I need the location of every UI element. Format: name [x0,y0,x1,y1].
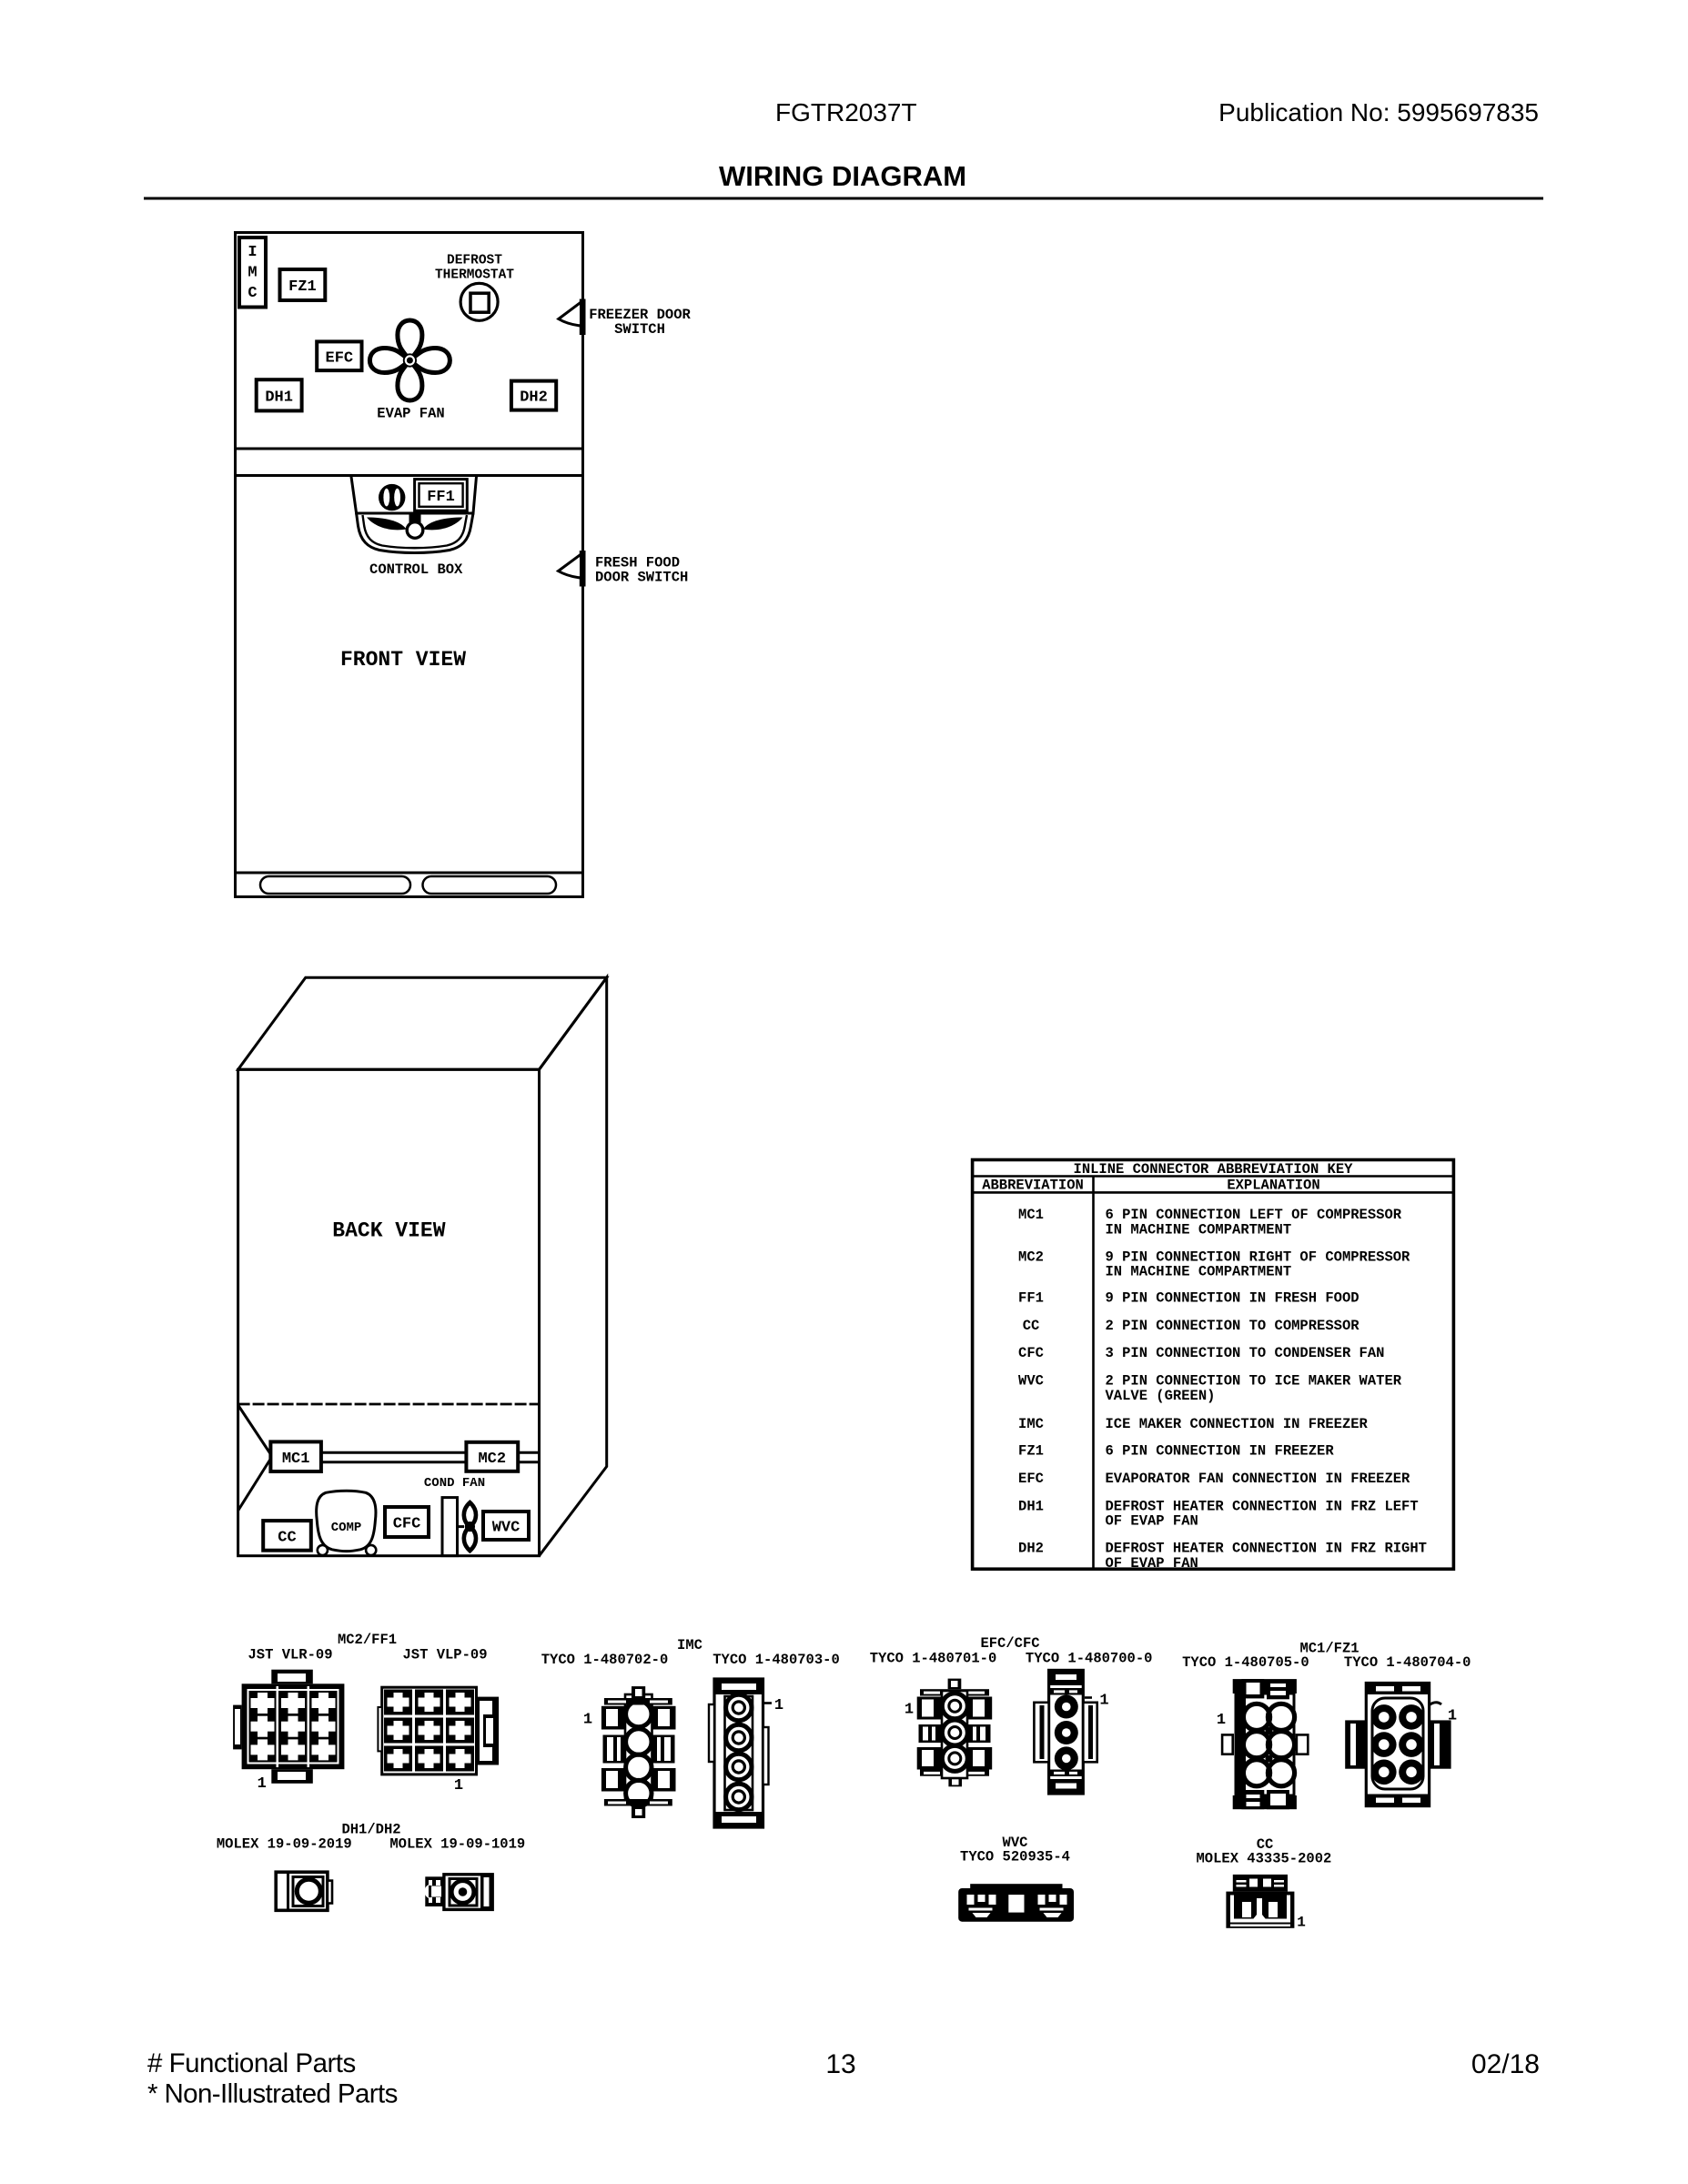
svg-text:IMC: IMC [1018,1416,1044,1432]
svg-text:ABBREVIATION: ABBREVIATION [982,1178,1084,1194]
svg-text:COND FAN: COND FAN [424,1476,485,1491]
svg-text:DH1: DH1 [265,389,293,406]
svg-text:EFC/CFC: EFC/CFC [980,1635,1039,1652]
svg-text:FF1: FF1 [1018,1289,1044,1306]
svg-text:FZ1: FZ1 [1018,1443,1044,1460]
svg-text:EFC: EFC [1018,1471,1044,1487]
svg-text:TYCO 1-480703-0: TYCO 1-480703-0 [713,1652,840,1668]
svg-text:THERMOSTAT: THERMOSTAT [435,268,514,283]
svg-text:# Functional Parts: # Functional Parts [147,2048,356,2078]
svg-text:13: 13 [825,2049,855,2079]
svg-text:VALVE (GREEN): VALVE (GREEN) [1106,1388,1216,1404]
svg-text:MC1: MC1 [282,1451,310,1468]
svg-text:3 PIN CONNECTION TO CONDENSER: 3 PIN CONNECTION TO CONDENSER FAN [1106,1345,1385,1361]
svg-text:TYCO 1-480701-0: TYCO 1-480701-0 [870,1651,997,1667]
svg-text:1: 1 [258,1775,267,1793]
svg-text:DOOR SWITCH: DOOR SWITCH [595,570,688,586]
svg-text:6 PIN CONNECTION LEFT OF COMPR: 6 PIN CONNECTION LEFT OF COMPRESSOR [1106,1207,1402,1223]
svg-text:IN MACHINE COMPARTMENT: IN MACHINE COMPARTMENT [1106,1264,1292,1280]
svg-text:TYCO 1-480700-0: TYCO 1-480700-0 [1026,1651,1153,1667]
svg-text:MOLEX 43335-2002: MOLEX 43335-2002 [1196,1851,1331,1867]
svg-text:1: 1 [1099,1692,1108,1709]
svg-text:MC2: MC2 [1018,1249,1044,1265]
svg-text:INLINE CONNECTOR ABBREVIATION: INLINE CONNECTOR ABBREVIATION KEY [1074,1161,1354,1178]
svg-text:OF EVAP FAN: OF EVAP FAN [1106,1513,1198,1530]
svg-text:JST VLP-09: JST VLP-09 [402,1647,487,1663]
svg-text:IMC: IMC [677,1637,702,1653]
svg-text:MC1: MC1 [1018,1207,1044,1223]
svg-text:SWITCH: SWITCH [614,321,665,338]
svg-text:TYCO 1-480705-0: TYCO 1-480705-0 [1182,1654,1309,1671]
svg-text:02/18: 02/18 [1471,2049,1540,2079]
svg-text:EVAP FAN: EVAP FAN [377,406,444,422]
svg-text:IN MACHINE COMPARTMENT: IN MACHINE COMPARTMENT [1106,1221,1292,1238]
svg-text:TYCO 520935-4: TYCO 520935-4 [960,1848,1070,1865]
svg-text:DH2: DH2 [520,389,548,407]
svg-text:1: 1 [454,1777,463,1795]
svg-text:DEFROST HEATER CONNECTION IN F: DEFROST HEATER CONNECTION IN FRZ RIGHT [1106,1541,1427,1557]
svg-text:FRONT VIEW: FRONT VIEW [340,648,466,672]
svg-text:MOLEX 19-09-1019: MOLEX 19-09-1019 [389,1835,525,1852]
svg-text:Publication No: 5995697835: Publication No: 5995697835 [1218,98,1539,126]
svg-text:CC: CC [1023,1318,1040,1334]
svg-text:1: 1 [1448,1708,1457,1725]
svg-text:EVAPORATOR FAN CONNECTION IN F: EVAPORATOR FAN CONNECTION IN FREEZER [1106,1471,1411,1487]
svg-text:FGTR2037T: FGTR2037T [775,98,917,126]
svg-text:WIRING DIAGRAM: WIRING DIAGRAM [719,160,966,192]
svg-text:CFC: CFC [393,1516,421,1533]
svg-text:* Non-Illustrated Parts: * Non-Illustrated Parts [147,2079,398,2109]
svg-text:1: 1 [583,1712,592,1729]
svg-text:COMP: COMP [331,1521,362,1535]
svg-text:I: I [248,244,257,261]
svg-text:DH1: DH1 [1018,1498,1044,1514]
svg-text:FZ1: FZ1 [288,278,317,296]
svg-text:C: C [248,285,257,302]
svg-text:CFC: CFC [1018,1345,1044,1361]
svg-text:JST VLR-09: JST VLR-09 [248,1647,332,1663]
svg-text:M: M [248,265,257,282]
svg-text:2 PIN CONNECTION TO COMPRESSOR: 2 PIN CONNECTION TO COMPRESSOR [1106,1318,1360,1334]
svg-text:MOLEX 19-09-2019: MOLEX 19-09-2019 [217,1835,352,1852]
svg-text:MC2/FF1: MC2/FF1 [338,1632,397,1648]
svg-text:9 PIN CONNECTION IN FRESH FOOD: 9 PIN CONNECTION IN FRESH FOOD [1106,1289,1359,1306]
svg-text:1: 1 [1297,1914,1306,1930]
svg-text:EFC: EFC [326,349,354,367]
svg-text:WVC: WVC [1018,1373,1044,1390]
svg-text:2 PIN CONNECTION TO ICE MAKER: 2 PIN CONNECTION TO ICE MAKER WATER [1106,1373,1402,1390]
svg-text:1: 1 [774,1697,783,1714]
svg-text:1: 1 [1217,1712,1226,1729]
svg-text:DEFROST: DEFROST [447,254,502,268]
svg-text:6 PIN CONNECTION IN FREEZER: 6 PIN CONNECTION IN FREEZER [1106,1443,1335,1460]
svg-text:FF1: FF1 [427,489,455,506]
svg-text:1: 1 [905,1701,914,1718]
svg-text:9 PIN CONNECTION RIGHT OF COMP: 9 PIN CONNECTION RIGHT OF COMPRESSOR [1106,1249,1411,1265]
svg-text:DH2: DH2 [1018,1541,1044,1557]
svg-text:TYCO 1-480704-0: TYCO 1-480704-0 [1344,1654,1471,1671]
svg-text:EXPLANATION: EXPLANATION [1227,1178,1319,1194]
svg-text:ICE MAKER CONNECTION IN FREEZE: ICE MAKER CONNECTION IN FREEZER [1106,1416,1369,1432]
svg-text:CONTROL BOX: CONTROL BOX [369,561,463,578]
svg-text:MC2: MC2 [478,1451,506,1468]
svg-text:BACK VIEW: BACK VIEW [332,1219,445,1243]
svg-text:TYCO 1-480702-0: TYCO 1-480702-0 [541,1652,669,1668]
svg-text:CC: CC [278,1530,296,1547]
svg-text:OF EVAP FAN: OF EVAP FAN [1106,1555,1198,1572]
svg-text:WVC: WVC [492,1520,521,1537]
svg-text:DEFROST HEATER CONNECTION IN F: DEFROST HEATER CONNECTION IN FRZ LEFT [1106,1498,1419,1514]
